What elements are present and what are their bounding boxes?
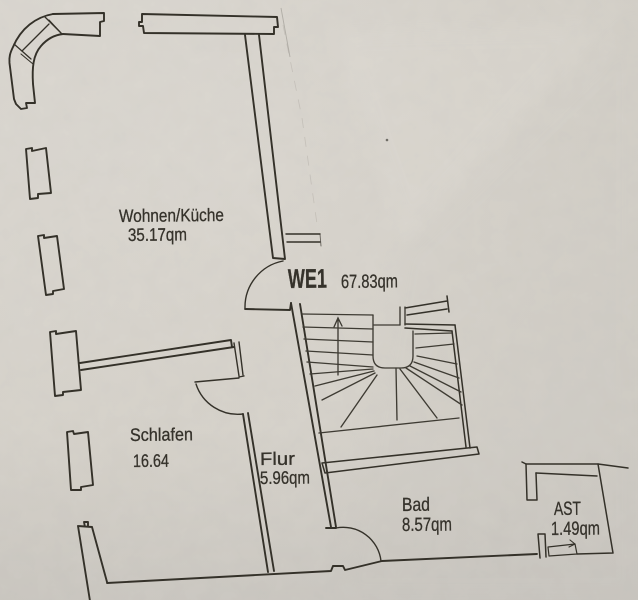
svg-text:1.49qm: 1.49qm <box>551 518 600 540</box>
svg-text:Schlafen: Schlafen <box>130 424 193 445</box>
svg-text:16.64: 16.64 <box>133 451 169 471</box>
svg-text:67.83qm: 67.83qm <box>341 271 398 293</box>
svg-text:Wohnen/Küche: Wohnen/Küche <box>119 205 224 226</box>
svg-text:Bad: Bad <box>402 495 430 516</box>
svg-text:Flur: Flur <box>260 449 295 469</box>
svg-text:5.96qm: 5.96qm <box>260 467 310 488</box>
svg-text:WE1: WE1 <box>288 264 327 294</box>
svg-text:8.57qm: 8.57qm <box>402 514 452 536</box>
svg-text:35.17qm: 35.17qm <box>128 224 187 245</box>
svg-text:AST: AST <box>554 499 582 520</box>
